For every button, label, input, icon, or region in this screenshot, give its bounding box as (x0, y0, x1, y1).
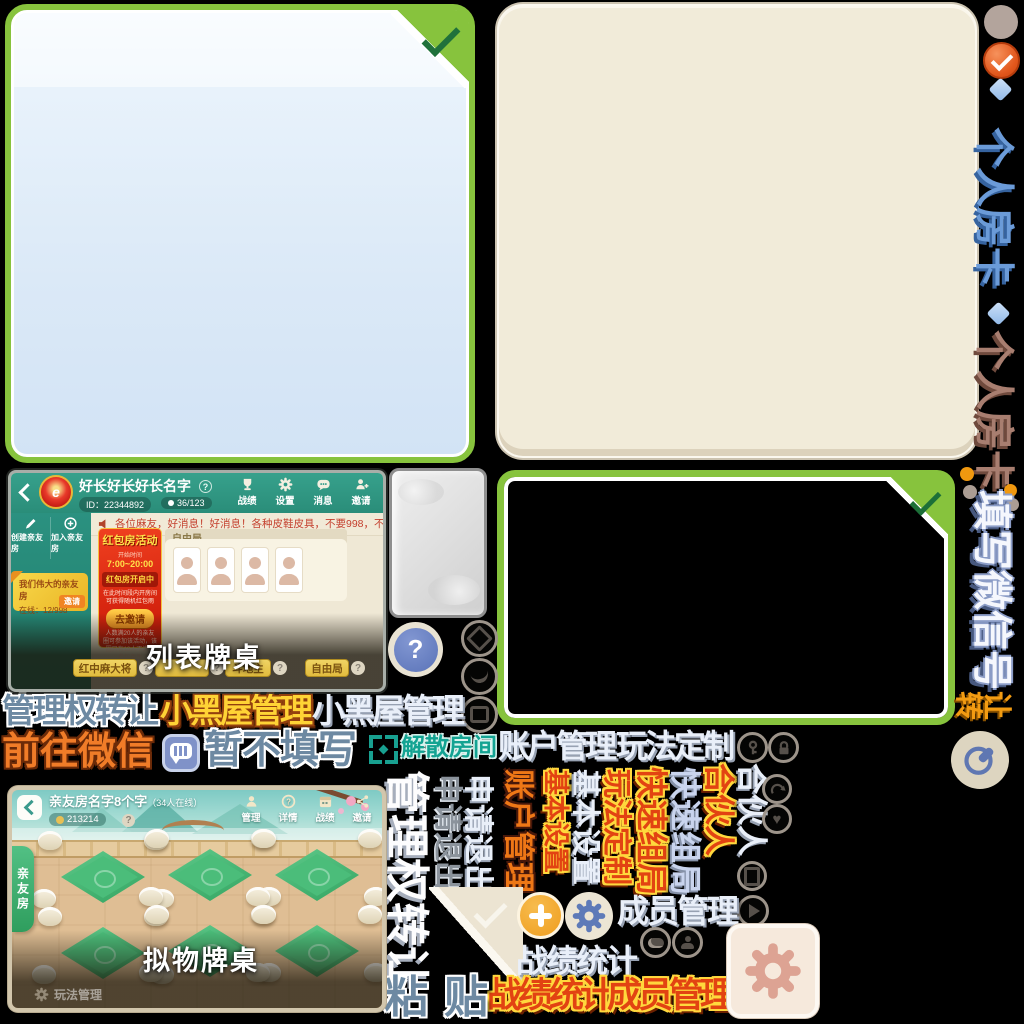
box-glyph (470, 706, 489, 723)
vlabel-basic-setting-light[interactable]: 基本设置 (570, 769, 600, 885)
label-dissolve-room[interactable]: 解散房间 (401, 736, 497, 760)
room-title: 好长好长好长名字 (79, 479, 191, 493)
question-icon: ? (394, 628, 438, 672)
vlabel-account-manage[interactable]: 账户管理 (502, 769, 534, 893)
poster-desc: 在此时间段内开房间可获得随机红包雨 (103, 590, 157, 606)
svg-text:?: ? (286, 798, 291, 807)
lock-glyph (775, 739, 793, 757)
back-arrow-icon (23, 800, 39, 816)
settings-tile[interactable] (727, 924, 819, 1018)
room-header: e 好长好长好长名字 ? ID：22344892 36/123 战绩 设置 (11, 473, 383, 513)
banner-invite-button[interactable]: 邀请 (59, 595, 85, 608)
vlabel-personal-card-blue: 个人房卡 (972, 127, 1014, 287)
pencil-icon (24, 517, 37, 530)
avatar-slot[interactable] (173, 547, 201, 593)
nav-share[interactable]: 邀请 (345, 794, 379, 824)
checkmark-icon (422, 18, 461, 57)
gear-icon (572, 899, 606, 933)
blue-dialog-panel (5, 4, 475, 463)
label-stats-light[interactable]: 战绩统计 (516, 945, 636, 977)
scene-room-screenshot: 亲友房名字8个字（34人在线） 213214 ? 管理 ? 详情 战绩 (8, 786, 386, 1012)
arc-glyph (469, 668, 490, 685)
label-blackroom-light[interactable]: 小黑屋管理 (312, 694, 462, 727)
rail-diamond-icon (988, 77, 1012, 101)
share-icon (355, 794, 370, 809)
rail-orange-dot (960, 467, 974, 481)
checkmark-icon (910, 484, 942, 516)
scene-help-icon[interactable]: ? (122, 814, 135, 827)
vlabel-quick-group-red[interactable]: 快速组局 (634, 767, 667, 895)
nav-stats[interactable]: 战绩 (229, 477, 265, 507)
confirm-corner[interactable] (886, 477, 948, 539)
redo-arrow-glyph (769, 781, 786, 798)
vlabel-apply-exit-light[interactable]: 申请退出 (462, 774, 493, 894)
back-icon[interactable] (18, 483, 36, 501)
label-transfer-char1[interactable]: 转 (953, 691, 982, 720)
label-goto-wechat[interactable]: 前往微信 (2, 733, 154, 771)
calendar-icon (318, 794, 333, 809)
vlabel-admin-transfer[interactable]: 管理权转让 (383, 770, 429, 990)
nav-invite[interactable]: 邀请 (343, 477, 379, 507)
header-nav: 战绩 设置 消息 邀请 (229, 477, 379, 507)
vlabel-quick-group-light[interactable]: 快速组局 (668, 767, 701, 895)
create-room-button[interactable]: 创建亲友房 (11, 517, 51, 559)
swipe-circle-icon[interactable] (461, 658, 498, 695)
share-circle-icon[interactable] (762, 774, 792, 804)
club-emblem: e (39, 475, 73, 509)
controller-glyph (648, 938, 664, 948)
banner-ribbon (11, 571, 23, 583)
label-members-light[interactable]: 成员管理 (617, 895, 737, 927)
pen-icon (962, 742, 998, 778)
gear-button[interactable] (565, 892, 613, 940)
label-admin-transfer[interactable]: 管理权转让 (2, 694, 157, 727)
caption-scene-table: 拟物牌桌 (143, 948, 259, 975)
label-account-manage[interactable]: 账户管理 (498, 730, 614, 762)
list-room-screenshot: e 好长好长好长名字 ? ID：22344892 36/123 战绩 设置 (8, 470, 386, 692)
person-circle-icon[interactable] (672, 927, 703, 958)
member-count-badge: 36/123 (161, 497, 212, 509)
play-glyph (749, 904, 760, 918)
poster-title: 红包房活动 (99, 532, 161, 548)
person-icon (244, 794, 259, 809)
room-id-badge: ID：22344892 (79, 497, 151, 512)
vlabel-apply-exit-gray[interactable]: 申请退出 (432, 774, 462, 890)
cloud-curl (398, 479, 444, 505)
dissolve-frame-icon[interactable] (369, 735, 398, 764)
vlabel-basic-setting-red[interactable]: 基本设置 (542, 769, 569, 873)
doc-circle-icon[interactable] (737, 861, 767, 891)
rail-check-circle[interactable] (983, 42, 1020, 79)
label-paste-left: 粘 (384, 976, 428, 1020)
club-banner[interactable]: 我们伟大的亲友房 在线：12/998 邀请 (13, 573, 88, 611)
vlabel-personal-card-brown: 个人房卡 (972, 330, 1014, 490)
avatar-slot[interactable] (241, 547, 269, 593)
person-icon (168, 500, 174, 506)
tab-help-icon[interactable]: ? (273, 661, 287, 675)
tab-ziyouju[interactable]: 自由局 (305, 659, 349, 677)
tile-back-card[interactable] (389, 468, 487, 618)
back-button[interactable] (17, 795, 42, 820)
checkmark-icon (991, 49, 1014, 72)
controller-circle-icon[interactable] (640, 927, 671, 958)
gear-icon (744, 942, 802, 1000)
gear-icon (278, 477, 293, 492)
invite-icon (354, 477, 369, 492)
poster-time: 7:00~20:00 (99, 559, 161, 569)
plus-button[interactable] (517, 892, 564, 939)
help-button[interactable]: ? (388, 622, 443, 677)
wechat-icon[interactable] (162, 734, 200, 772)
info-icon: ? (281, 794, 296, 809)
plus-circle-icon (64, 517, 77, 530)
tab-help-icon[interactable]: ? (351, 661, 365, 675)
edit-circle-button[interactable] (951, 731, 1009, 789)
diamond-glyph (466, 625, 493, 652)
cloud-curl (428, 575, 480, 605)
gear-icon (34, 987, 49, 1002)
label-stats-orange[interactable]: 战绩统计 (487, 978, 611, 1013)
avatar-slot[interactable] (275, 547, 303, 593)
doc-glyph (744, 867, 760, 886)
id-icon (56, 816, 64, 824)
rail-gray-circle (984, 5, 1018, 39)
friend-room-tab-label: 亲友房 (15, 867, 32, 912)
plus-glyph (538, 904, 544, 927)
sprite-atlas: ? 管理权转让 小黑屋管理 小黑屋管理 前往微信 暂不填写 解散房间 账户管理 … (0, 0, 1024, 1024)
scene-title: 亲友房名字8个字（34人在线） (49, 795, 202, 808)
nav-record[interactable]: 战绩 (308, 794, 342, 824)
key-glyph (744, 739, 762, 757)
checkmark-icon (474, 895, 508, 929)
heart-glyph: ♥ (773, 811, 782, 828)
title-help-icon[interactable]: ? (199, 480, 212, 493)
scene-nav: 管理 ? 详情 战绩 邀请 (234, 794, 379, 824)
join-room-button[interactable]: 加入亲友房 (51, 517, 90, 559)
label-blackroom-yellow[interactable]: 小黑屋管理 (160, 694, 310, 727)
confirm-corner[interactable] (391, 10, 469, 88)
poster-time-label: 开始时间 (99, 550, 161, 559)
free-mode-card (165, 539, 347, 601)
nav-settings[interactable]: 设置 (267, 477, 303, 507)
vlabel-partner-red[interactable]: 合伙人 (702, 763, 734, 856)
heart-circle-icon[interactable]: ♥ (762, 804, 792, 834)
label-members-orange[interactable]: 成员管理 (607, 978, 731, 1013)
beige-dialog-panel (497, 4, 977, 458)
vlabel-gameplay-custom[interactable]: 玩法定制 (601, 769, 631, 885)
trophy-icon (240, 477, 255, 492)
avatar-slot[interactable] (207, 547, 235, 593)
vlabel-partner-light[interactable]: 合伙人 (735, 763, 767, 856)
vlabel-fill-wechat: 填写微信号 (970, 490, 1012, 690)
message-icon (316, 477, 331, 492)
scene-id-badge: 213214 (49, 813, 106, 826)
diamond-circle-icon[interactable] (461, 620, 498, 657)
caption-list-table: 列表牌桌 (146, 645, 262, 672)
gameplay-manage[interactable]: 玩法管理 (34, 986, 102, 1003)
label-not-fill[interactable]: 暂不填写 (204, 731, 356, 770)
friend-room-tab[interactable]: 亲友房 (12, 846, 34, 932)
poster-status: 红包房开启中 (102, 572, 158, 587)
label-gameplay-custom[interactable]: 玩法定制 (616, 730, 732, 762)
selected-frame-panel (497, 470, 955, 725)
nav-messages[interactable]: 消息 (305, 477, 341, 507)
nav-manage[interactable]: 管理 (234, 794, 268, 824)
label-paste-right: 贴 (444, 976, 488, 1020)
rail-diamond-icon (986, 301, 1010, 325)
tab-hongzhong[interactable]: 红中麻大将 (73, 659, 137, 677)
label-transfer-char2[interactable]: 让 (981, 691, 1010, 720)
key-circle-icon[interactable] (737, 732, 768, 763)
box-circle-icon[interactable] (461, 696, 498, 733)
play-circle-icon[interactable] (737, 895, 769, 927)
nav-details[interactable]: ? 详情 (271, 794, 305, 824)
person-glyph (681, 936, 694, 949)
lock-circle-icon[interactable] (768, 732, 799, 763)
gameplay-manage-label: 玩法管理 (54, 986, 102, 1003)
